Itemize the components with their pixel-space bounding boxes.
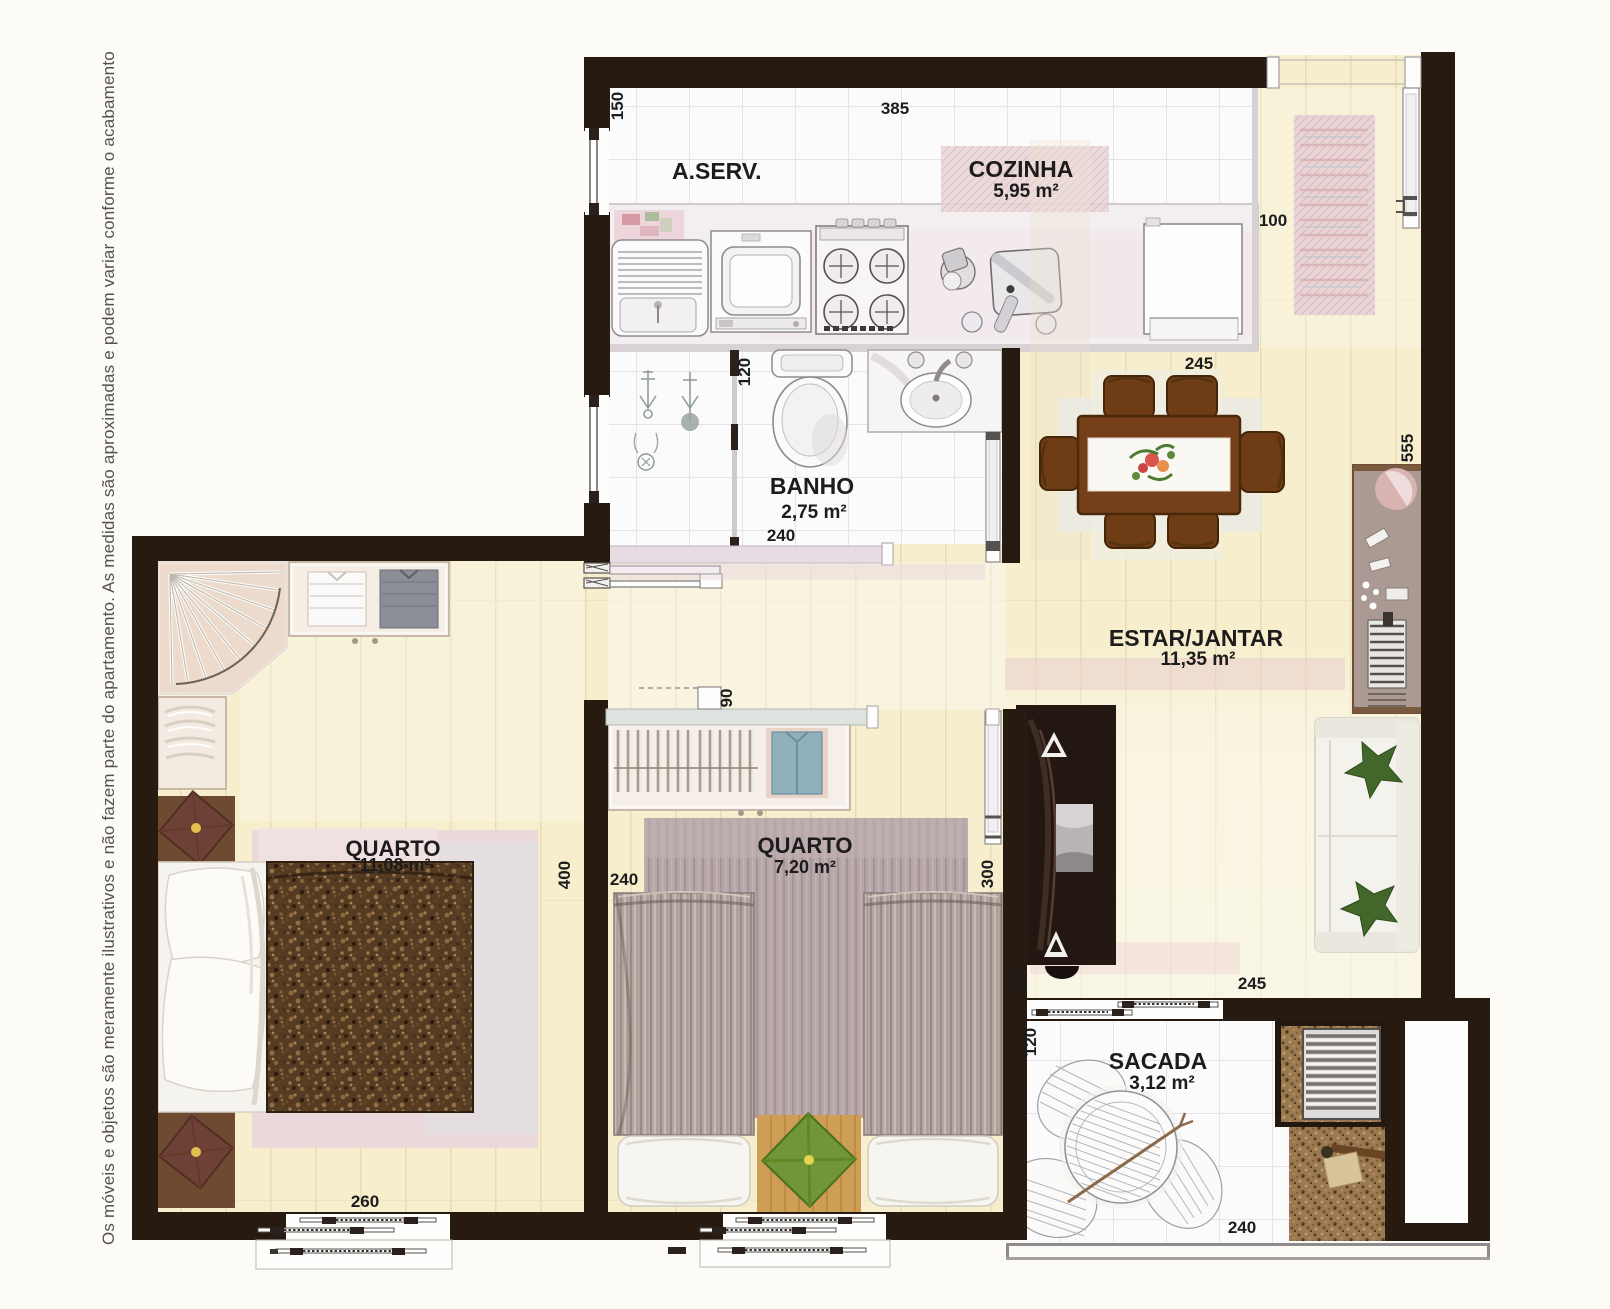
svg-text:ESTAR/JANTAR: ESTAR/JANTAR [1109, 625, 1284, 651]
svg-text:385: 385 [881, 99, 909, 118]
svg-text:150: 150 [608, 92, 627, 120]
svg-text:245: 245 [1185, 354, 1213, 373]
svg-text:11,08 m²: 11,08 m² [359, 855, 430, 875]
svg-text:3,12 m²: 3,12 m² [1129, 1073, 1194, 1094]
svg-text:240: 240 [767, 526, 795, 545]
svg-text:QUARTO: QUARTO [758, 833, 853, 858]
svg-text:555: 555 [1398, 434, 1417, 462]
svg-text:2,75 m²: 2,75 m² [781, 502, 846, 523]
svg-text:90: 90 [717, 689, 736, 708]
svg-text:SACADA: SACADA [1109, 1048, 1207, 1074]
svg-text:7,20 m²: 7,20 m² [774, 857, 836, 877]
svg-text:260: 260 [351, 1192, 379, 1211]
svg-text:120: 120 [735, 358, 754, 386]
svg-text:11,35 m²: 11,35 m² [1161, 649, 1236, 670]
svg-text:A.SERV.: A.SERV. [672, 158, 762, 184]
svg-text:240: 240 [1228, 1218, 1256, 1237]
svg-text:BANHO: BANHO [770, 473, 854, 499]
svg-text:175: 175 [1011, 964, 1030, 992]
svg-text:245: 245 [1238, 974, 1266, 993]
svg-text:COZINHA: COZINHA [969, 156, 1074, 182]
svg-text:5,95 m²: 5,95 m² [993, 181, 1058, 202]
svg-text:120: 120 [1021, 1028, 1040, 1056]
svg-text:Os móveis e objetos são merame: Os móveis e objetos são meramente ilustr… [99, 51, 118, 1245]
svg-text:400: 400 [555, 861, 574, 889]
svg-text:100: 100 [1259, 211, 1287, 230]
svg-text:300: 300 [978, 860, 997, 888]
svg-text:240: 240 [610, 870, 638, 889]
